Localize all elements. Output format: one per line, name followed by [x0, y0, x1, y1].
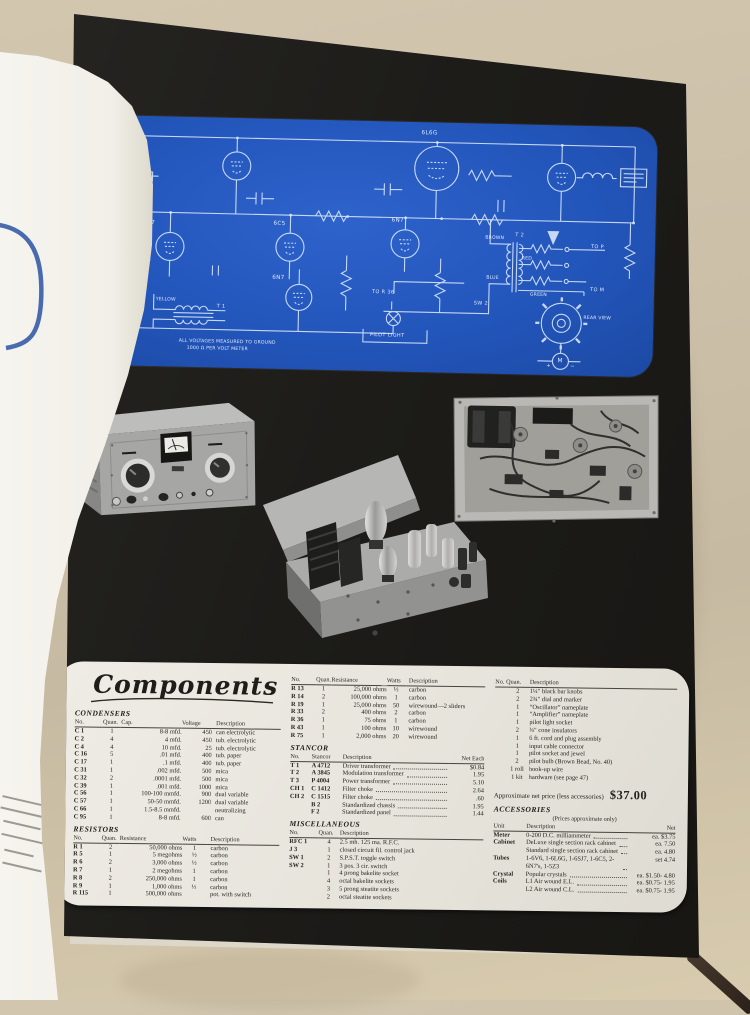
table-cell: 50	[386, 702, 405, 710]
table-cell: 4	[318, 838, 339, 847]
miscellaneous-table: No.Quan.DescriptionRFC 142.5 mh. 125 ma.…	[289, 829, 484, 903]
wire-color-brown: BROWN	[485, 236, 504, 241]
column-header: No.	[290, 753, 311, 762]
net-price-value: $37.00	[610, 787, 648, 802]
table-cell: R 1	[73, 842, 101, 851]
table-cell: SW 1	[289, 854, 318, 862]
table-cell: pot. with switch	[206, 891, 279, 900]
table-cell	[493, 886, 526, 894]
tube-label-6c5: 6C5	[273, 221, 285, 227]
table-cell	[495, 711, 506, 719]
column-header: Unit	[493, 822, 526, 831]
photo-chassis-angled	[258, 450, 493, 642]
wire-color-red: RED	[522, 256, 532, 261]
terminal-label-to-m: TO M	[590, 287, 604, 293]
transformer-label-t2: T 2	[515, 232, 524, 238]
column-header: Cap.	[121, 719, 182, 728]
table-cell: 4	[103, 743, 121, 751]
stancor-table: No.StancorDescriptionNet EachT 1A 4712Dr…	[290, 753, 485, 819]
parts-table: UnitDescriptionNetMeter0-200 D.C. millia…	[493, 822, 676, 896]
parts-column-1: Components CONDENSERS No.Quan.Cap.Voltag…	[73, 669, 282, 900]
table-cell: R 13	[291, 685, 316, 694]
parts-table: No.Quan.Description21¼″ black bar knobs2…	[494, 678, 677, 783]
column-header: No.	[289, 829, 318, 838]
column-header: Watts	[182, 835, 206, 844]
table-cell: 1	[101, 867, 119, 875]
table-cell: R 75	[291, 732, 316, 740]
table-cell: L2 Air wound C.L.	[525, 886, 629, 895]
table-cell: 1	[182, 844, 206, 853]
table-cell: C 1412	[311, 785, 342, 793]
condensers-table: No.Quan.Cap.VoltageDescriptionC 118-8 mf…	[74, 718, 281, 823]
column-header: Quan.	[318, 830, 339, 839]
table-cell: 2	[386, 710, 405, 718]
table-cell: wirewound	[405, 733, 484, 742]
table-row: L2 Air wound C.L.ea. $0.75- 1.95	[493, 886, 675, 896]
parts-table: No.StancorDescriptionNet EachT 1A 4712Dr…	[290, 753, 485, 819]
table-cell: C 32	[74, 774, 102, 782]
column-header: Resistance	[120, 834, 183, 843]
table-cell	[495, 687, 506, 695]
table-row: R 1151500,000 ohmspot. with switch	[73, 890, 279, 900]
table-cell: T 1	[290, 761, 311, 770]
table-cell: set 4.74	[629, 856, 675, 872]
accessories-table: UnitDescriptionNetMeter0-200 D.C. millia…	[493, 822, 676, 896]
table-cell: RFC 1	[289, 838, 318, 847]
table-cell: 1	[101, 882, 119, 890]
table-cell: CH 1	[290, 785, 311, 793]
table-cell: 2	[318, 893, 339, 901]
table-cell: 600	[181, 814, 211, 822]
table-cell: 1	[387, 694, 406, 702]
table-cell: 1	[101, 851, 119, 859]
table-cell: 1	[102, 767, 120, 775]
table-cell: C 2	[75, 735, 103, 743]
table-cell: 2	[101, 874, 119, 882]
tube-label-6n7-b: 6N7	[272, 275, 284, 281]
column-header: Quan.	[103, 719, 121, 728]
meter-minus-mark: −	[570, 364, 575, 370]
table-cell	[494, 765, 505, 773]
table-row: C 9518-8 mfd.600can	[74, 813, 280, 823]
wire-color-yellow: YELLOW	[156, 297, 176, 302]
table-cell: C 1	[75, 727, 103, 736]
table-cell: 1	[315, 724, 330, 732]
table-cell: 1	[316, 685, 331, 693]
pilot-light-label: PILOT LIGHT	[370, 332, 405, 339]
table-cell: 2	[101, 843, 119, 852]
table-cell: R 14	[291, 693, 316, 701]
table-cell: R 43	[291, 724, 316, 732]
table-cell: C 1515	[311, 793, 342, 801]
table-cell: 2	[316, 709, 331, 717]
column-header: Quan.	[316, 676, 331, 685]
camera-strap	[686, 950, 750, 1015]
parts-column-2: No.Quan.ResistanceWattsDescriptionR 1312…	[289, 676, 486, 903]
parts-table: No.Quan.DescriptionRFC 142.5 mh. 125 ma.…	[289, 829, 484, 903]
parts-table: No.Quan.ResistanceWattsDescriptionR 1250…	[73, 834, 280, 900]
net-price-label: Approximate net price (less accessories)	[494, 792, 604, 800]
table-cell: 1	[316, 716, 331, 724]
table-cell: 1.44	[449, 810, 484, 818]
switch-label-sw2: SW 2	[474, 300, 488, 306]
table-cell: 1	[102, 806, 120, 814]
table-cell: octal steatite sockets	[339, 893, 483, 903]
column-header: Voltage	[182, 720, 212, 729]
table-cell	[495, 719, 506, 727]
table-cell: 1-6V6, 1-6L6G, 1-6SJ7, 1-6C5, 2-6N7's, 1…	[526, 855, 630, 872]
wire-color-green: GREEN	[530, 293, 547, 298]
table-row: 2octal steatite sockets	[289, 893, 483, 903]
table-cell: 1	[102, 798, 120, 806]
parts-column-3: No.Quan.Description21¼″ black bar knobs2…	[493, 678, 678, 895]
meter-plus-mark: +	[546, 363, 551, 369]
title-underline-flourish	[87, 696, 277, 708]
components-panel: Components CONDENSERS No.Quan.Cap.Voltag…	[55, 661, 690, 913]
table-cell: 1	[102, 790, 120, 798]
table-cell: SW 2	[289, 862, 318, 870]
table-cell: J 3	[289, 846, 318, 854]
table-cell: 1	[103, 727, 121, 736]
tube-label-6n7-a: 6N7	[392, 217, 404, 223]
tube-label-6l6g: 6L6G	[422, 130, 438, 136]
table-cell: Standardized panel	[342, 809, 449, 818]
table-row: R 7512,000 ohms20wirewound	[291, 732, 485, 742]
table-cell: can	[211, 815, 280, 824]
transformer-label-t1: T 1	[217, 304, 226, 310]
table-cell: R 7	[73, 866, 101, 874]
resistors-continued-table: No.Quan.ResistanceWattsDescriptionR 1312…	[291, 676, 486, 742]
column-header: Quan.	[102, 834, 120, 843]
wire-label-to-r36: TO R 36	[372, 289, 395, 296]
table-cell: 2	[101, 859, 119, 867]
table-cell: hardware (see page 47)	[529, 774, 677, 784]
parts-table: No.Quan.ResistanceWattsDescriptionR 1312…	[291, 676, 486, 742]
column-header: Watts	[387, 677, 406, 686]
table-cell	[494, 773, 505, 781]
column-header: Stancor	[312, 753, 343, 762]
table-cell: Coils	[493, 878, 526, 886]
table-cell: 1	[386, 717, 405, 725]
terminal-label-to-p: TO P	[591, 244, 604, 250]
resistors-table: No.Quan.ResistanceWattsDescriptionR 1250…	[73, 834, 280, 900]
table-surface-streak	[120, 950, 420, 1010]
column-header: Quan.	[506, 679, 530, 688]
table-cell: C 31	[74, 766, 102, 774]
table-cell: 8-8 mfd.	[120, 814, 181, 823]
table-cell	[182, 891, 206, 899]
column-header: No.	[75, 718, 103, 727]
table-cell: 2	[102, 774, 120, 782]
table-cell	[495, 703, 506, 711]
table-cell	[290, 808, 311, 816]
column-header: No.	[73, 834, 101, 843]
table-cell: ½	[387, 686, 406, 695]
hardware-table: No.Quan.Description21¼″ black bar knobs2…	[494, 678, 677, 783]
table-cell: 2	[506, 687, 530, 696]
column-header: Resistance	[331, 676, 386, 685]
table-row: 1 kithardware (see page 47)	[494, 773, 676, 783]
column-header: No.	[495, 678, 506, 687]
socket-rear-view-label: REAR VIEW	[583, 316, 611, 322]
table-cell: C 95	[74, 813, 102, 821]
table-cell: 1 kit	[505, 773, 529, 781]
net-price-line: Approximate net price (less accessories)…	[494, 786, 676, 803]
table-cell: 2	[316, 693, 331, 701]
table-cell	[495, 726, 506, 734]
wire-color-blue: BLUE	[486, 276, 499, 281]
meter-letter: M	[557, 357, 563, 364]
schematic-panel: 6L6G 6SJ7 6C5 6N7 6N7 T 1 T 2 SW 2 TO R …	[82, 115, 658, 378]
table-cell: Tubes	[493, 854, 526, 870]
parts-table: No.Quan.Cap.VoltageDescriptionC 118-8 mf…	[74, 718, 281, 823]
table-cell: 2,000 ohms	[331, 732, 386, 740]
table-cell: ea. $0.75- 1.95	[629, 887, 675, 895]
table-cell: 1	[316, 701, 331, 709]
components-title: Components	[93, 670, 281, 708]
table-cell: R 8	[73, 874, 101, 882]
table-cell: 5	[103, 751, 121, 759]
table-cell: 1	[315, 732, 330, 740]
table-row: F 2Standardized panel1.44	[290, 808, 484, 818]
table-cell: F 2	[311, 809, 342, 817]
table-cell	[494, 758, 505, 766]
table-cell: R 115	[73, 890, 101, 898]
table-cell: 1	[102, 782, 120, 790]
table-cell: C 66	[74, 805, 102, 813]
table-cell	[494, 750, 505, 758]
table-cell	[495, 695, 506, 703]
table-cell: 10	[386, 725, 405, 733]
table-cell: Cabinet	[493, 839, 526, 847]
table-cell: 20	[386, 733, 405, 741]
table-cell	[495, 734, 506, 742]
table-cell	[494, 742, 505, 750]
table-cell: 1	[101, 890, 119, 898]
table-cell: T 3	[290, 777, 311, 785]
table-cell: 500,000 ohms	[119, 890, 182, 899]
table-cell: CH 2	[290, 793, 311, 801]
table-cell: 1	[102, 813, 120, 821]
table-cell: 1	[103, 759, 121, 767]
column-header: No.	[291, 676, 316, 685]
table-cell: 4	[103, 736, 121, 744]
table-cell	[289, 893, 318, 901]
